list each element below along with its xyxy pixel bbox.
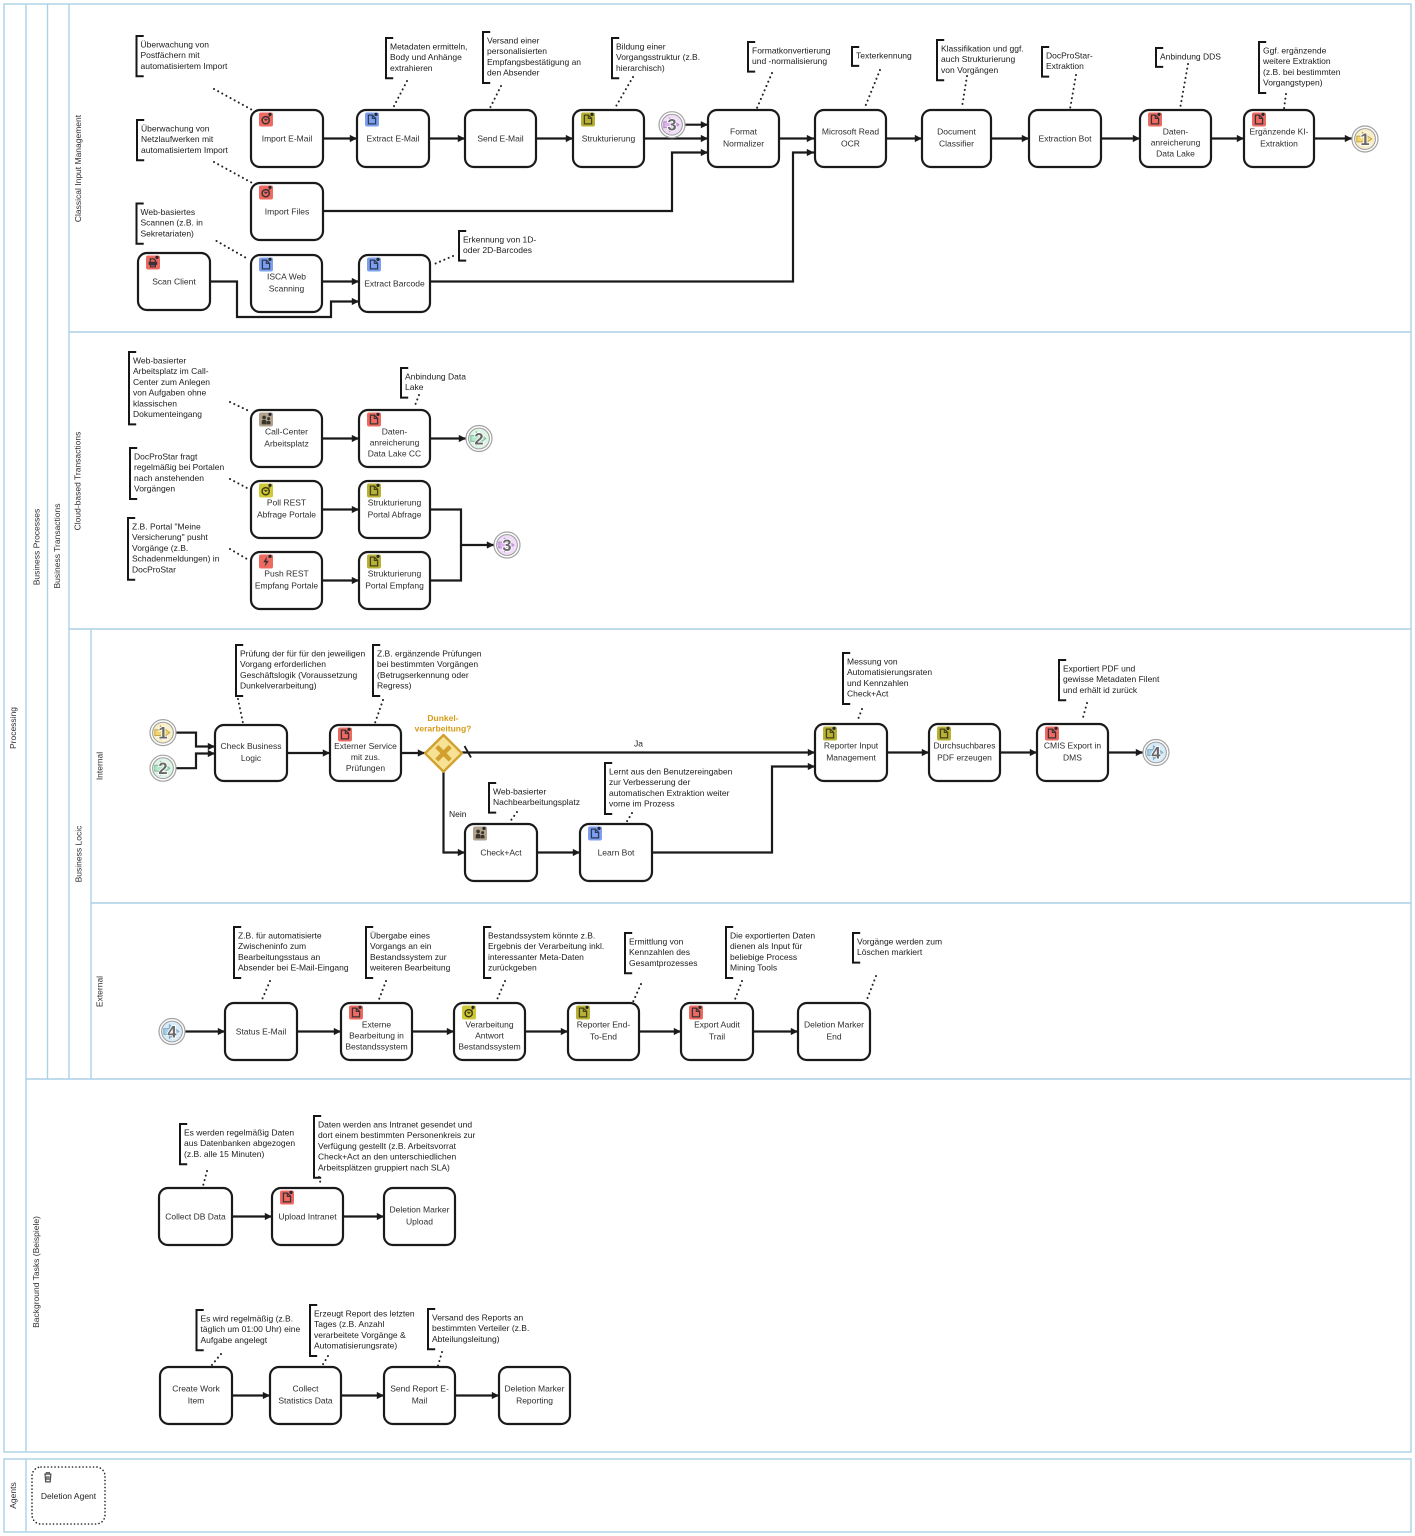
svg-text:Trail: Trail xyxy=(709,1031,725,1041)
svg-text:Regress): Regress) xyxy=(377,681,412,691)
svg-text:Learn Bot: Learn Bot xyxy=(598,847,635,857)
svg-text:Create Work: Create Work xyxy=(172,1384,220,1394)
svg-text:Postfächern mit: Postfächern mit xyxy=(141,50,201,60)
svg-text:Scan Client: Scan Client xyxy=(152,276,196,286)
svg-text:Vorgangsstruktur (z.B.: Vorgangsstruktur (z.B. xyxy=(616,52,700,62)
svg-text:Check Business: Check Business xyxy=(221,741,282,751)
svg-text:Versicherung" pusht: Versicherung" pusht xyxy=(132,532,208,542)
svg-text:1: 1 xyxy=(1360,131,1369,149)
svg-text:Send E-Mail: Send E-Mail xyxy=(477,133,523,143)
svg-text:DocProStar-: DocProStar- xyxy=(1046,51,1093,61)
svg-text:Classical Input Management: Classical Input Management xyxy=(73,114,83,222)
svg-text:von Vorgängen: von Vorgängen xyxy=(941,65,998,75)
svg-text:Scannen (z.B. in: Scannen (z.B. in xyxy=(141,218,204,228)
svg-text:Anbindung DDS: Anbindung DDS xyxy=(1160,52,1221,62)
svg-text:Item: Item xyxy=(188,1395,205,1405)
svg-text:Bearbeitung in: Bearbeitung in xyxy=(349,1030,404,1040)
svg-text:Z.B. für automatisierte: Z.B. für automatisierte xyxy=(238,931,322,941)
svg-text:Ergänzende KI-: Ergänzende KI- xyxy=(1249,127,1308,137)
svg-text:Background Tasks (Beispiele): Background Tasks (Beispiele) xyxy=(31,1216,41,1328)
svg-text:End: End xyxy=(826,1031,841,1041)
svg-text:1: 1 xyxy=(158,724,167,742)
svg-text:Portal Empfang: Portal Empfang xyxy=(365,580,424,590)
svg-text:Scanning: Scanning xyxy=(269,283,305,293)
svg-text:Zwischeninfo zum: Zwischeninfo zum xyxy=(238,941,306,951)
svg-text:(Betrugserkennung oder: (Betrugserkennung oder xyxy=(377,670,469,680)
svg-text:Deletion Marker: Deletion Marker xyxy=(505,1384,565,1394)
svg-text:Die exportierten Daten: Die exportierten Daten xyxy=(730,931,815,941)
svg-text:Reporting: Reporting xyxy=(516,1395,553,1405)
svg-text:mit zus.: mit zus. xyxy=(351,752,380,762)
svg-text:Ja: Ja xyxy=(634,739,643,749)
svg-text:Collect DB Data: Collect DB Data xyxy=(165,1211,226,1221)
svg-text:Absender bei E-Mail-Eingang: Absender bei E-Mail-Eingang xyxy=(238,963,349,973)
svg-text:Überwachung von: Überwachung von xyxy=(141,40,210,50)
svg-text:Center zum Anlegen: Center zum Anlegen xyxy=(133,377,210,387)
svg-text:oder 2D-Barcodes: oder 2D-Barcodes xyxy=(463,245,532,255)
svg-text:Dunkel-: Dunkel- xyxy=(427,713,458,723)
svg-text:Send Report E-: Send Report E- xyxy=(390,1384,449,1394)
svg-text:bestimmten Verteiler (z.B.: bestimmten Verteiler (z.B. xyxy=(432,1323,529,1333)
svg-text:Daten-: Daten- xyxy=(1163,127,1189,137)
svg-text:Bestandssystem: Bestandssystem xyxy=(458,1041,520,1051)
svg-text:Logic: Logic xyxy=(241,753,262,763)
svg-text:Dokumenteingang: Dokumenteingang xyxy=(133,409,202,419)
svg-text:Format: Format xyxy=(730,127,758,137)
svg-text:Extraction Bot: Extraction Bot xyxy=(1039,133,1093,143)
svg-text:zur Verbesserung der: zur Verbesserung der xyxy=(609,777,690,787)
svg-text:Data Lake CC: Data Lake CC xyxy=(368,448,421,458)
svg-text:Business Locic: Business Locic xyxy=(74,825,84,882)
svg-text:Bearbeitungsstaus an: Bearbeitungsstaus an xyxy=(238,952,320,962)
svg-text:regelmäßig bei Portalen: regelmäßig bei Portalen xyxy=(134,462,225,472)
svg-text:Arbeitsplatz im Call-: Arbeitsplatz im Call- xyxy=(133,366,209,376)
svg-text:Import Files: Import Files xyxy=(265,206,309,216)
svg-text:weiteren Bearbeitung: weiteren Bearbeitung xyxy=(369,963,451,973)
svg-text:automatischen Extraktion weite: automatischen Extraktion weiter xyxy=(609,788,730,798)
svg-text:Extraktion: Extraktion xyxy=(1046,61,1084,71)
svg-text:vorne im Prozess: vorne im Prozess xyxy=(609,799,675,809)
svg-text:auch Strukturierung: auch Strukturierung xyxy=(941,54,1015,64)
svg-text:weitere Extraktion: weitere Extraktion xyxy=(1262,56,1331,66)
svg-text:von Aufgaben ohne: von Aufgaben ohne xyxy=(133,388,207,398)
svg-text:anreicherung: anreicherung xyxy=(1151,137,1201,147)
svg-text:Lake: Lake xyxy=(405,382,424,392)
svg-text:Es werden regelmäßig Daten: Es werden regelmäßig Daten xyxy=(184,1128,294,1138)
svg-text:Exportiert PDF und: Exportiert PDF und xyxy=(1063,664,1136,674)
svg-text:automatisiertem Import: automatisiertem Import xyxy=(141,61,229,71)
svg-text:Klassifikation und ggf.: Klassifikation und ggf. xyxy=(941,44,1024,54)
svg-text:Upload: Upload xyxy=(406,1216,433,1226)
svg-text:Web-basierter: Web-basierter xyxy=(133,356,186,366)
svg-text:Automatisierungsrate): Automatisierungsrate) xyxy=(314,1341,397,1351)
svg-text:Verarbeitung: Verarbeitung xyxy=(465,1020,513,1030)
svg-text:External: External xyxy=(95,976,105,1007)
svg-text:Bestandssystem: Bestandssystem xyxy=(345,1041,407,1051)
svg-text:2: 2 xyxy=(158,760,167,778)
svg-text:ISCA Web: ISCA Web xyxy=(267,272,306,282)
svg-text:hierarchisch): hierarchisch) xyxy=(616,63,665,73)
svg-text:Automatisierungsraten: Automatisierungsraten xyxy=(847,667,932,677)
svg-text:DocProStar: DocProStar xyxy=(132,564,176,574)
svg-text:Strukturierung: Strukturierung xyxy=(582,133,636,143)
svg-text:aus Datenbanken abgezogen: aus Datenbanken abgezogen xyxy=(184,1138,295,1148)
svg-text:Texterkennung: Texterkennung xyxy=(856,51,912,61)
svg-text:Verfügung gestellt (z.B. Arbei: Verfügung gestellt (z.B. Arbeitsvorrat xyxy=(318,1141,457,1151)
svg-text:Status E-Mail: Status E-Mail xyxy=(236,1026,287,1036)
svg-text:dienen als Input für: dienen als Input für xyxy=(730,941,802,951)
svg-text:Z.B. Portal "Meine: Z.B. Portal "Meine xyxy=(132,522,201,532)
svg-text:dort einem bestimmten Personen: dort einem bestimmten Personenkreis zur xyxy=(318,1130,475,1140)
svg-text:Es wird regelmäßig (z.B.: Es wird regelmäßig (z.B. xyxy=(201,1314,294,1324)
svg-text:extrahieren: extrahieren xyxy=(390,63,433,73)
svg-text:Bildung einer: Bildung einer xyxy=(616,42,666,52)
svg-text:DMS: DMS xyxy=(1063,752,1082,762)
svg-text:CMIS Export in: CMIS Export in xyxy=(1044,741,1101,751)
svg-text:Export Audit: Export Audit xyxy=(694,1020,740,1030)
svg-text:Messung von: Messung von xyxy=(847,657,898,667)
svg-text:2: 2 xyxy=(474,430,483,448)
svg-text:Empfangsbestätigung an: Empfangsbestätigung an xyxy=(487,57,581,67)
svg-text:Cloud-based Transactions: Cloud-based Transactions xyxy=(72,432,82,531)
svg-text:Portal Abfrage: Portal Abfrage xyxy=(368,509,422,519)
svg-text:Ermittlung von: Ermittlung von xyxy=(629,937,684,947)
svg-text:Web-basiertes: Web-basiertes xyxy=(141,207,196,217)
svg-text:Z.B. ergänzende Prüfungen: Z.B. ergänzende Prüfungen xyxy=(377,649,482,659)
svg-text:Deletion Agent: Deletion Agent xyxy=(41,1491,97,1501)
svg-text:Check+Act an den unterschiedli: Check+Act an den unterschiedlichen xyxy=(318,1152,456,1162)
svg-text:interessanter Meta-Daten: interessanter Meta-Daten xyxy=(488,952,584,962)
svg-text:Kennzahlen des: Kennzahlen des xyxy=(629,947,690,957)
svg-text:Check+Act: Check+Act xyxy=(480,847,522,857)
svg-text:Versand des Reports an: Versand des Reports an xyxy=(432,1313,523,1323)
svg-text:Extract E-Mail: Extract E-Mail xyxy=(367,133,420,143)
svg-text:Extraktion: Extraktion xyxy=(1260,138,1298,148)
svg-text:Überwachung von: Überwachung von xyxy=(141,124,210,134)
svg-text:Business Processes: Business Processes xyxy=(32,509,42,586)
svg-text:Tages (z.B. Anzahl: Tages (z.B. Anzahl xyxy=(314,1319,385,1329)
svg-text:Ergebnis der Verarbeitung inkl: Ergebnis der Verarbeitung inkl. xyxy=(488,941,604,951)
svg-text:Deletion Marker: Deletion Marker xyxy=(804,1020,864,1030)
svg-text:3: 3 xyxy=(502,537,511,555)
svg-text:Nachbearbeitungsplatz: Nachbearbeitungsplatz xyxy=(493,797,580,807)
svg-text:3: 3 xyxy=(667,117,676,135)
svg-text:Erkennung von 1D-: Erkennung von 1D- xyxy=(463,235,536,245)
svg-text:Durchsuchbares: Durchsuchbares xyxy=(934,741,996,751)
svg-text:Gesamtprozesses: Gesamtprozesses xyxy=(629,958,698,968)
svg-text:und Kennzahlen: und Kennzahlen xyxy=(847,678,909,688)
svg-text:täglich um 01:00 Uhr) eine: täglich um 01:00 Uhr) eine xyxy=(201,1324,301,1334)
svg-text:Übergabe eines: Übergabe eines xyxy=(370,931,430,941)
svg-text:Internal: Internal xyxy=(95,752,105,780)
svg-text:und erhält id zurück: und erhält id zurück xyxy=(1063,685,1138,695)
svg-text:(z.B. alle 15 Minuten): (z.B. alle 15 Minuten) xyxy=(184,1149,264,1159)
svg-text:Prüfungen: Prüfungen xyxy=(346,763,385,773)
svg-text:Microsoft Read: Microsoft Read xyxy=(822,127,879,137)
svg-text:klassischen: klassischen xyxy=(133,398,177,408)
svg-text:Dunkelverarbeitung): Dunkelverarbeitung) xyxy=(240,681,317,691)
svg-text:Mining Tools: Mining Tools xyxy=(730,963,777,973)
svg-text:Bestandssystem zur: Bestandssystem zur xyxy=(370,952,447,962)
svg-text:Data Lake: Data Lake xyxy=(1156,148,1195,158)
svg-text:Vorgangs an ein: Vorgangs an ein xyxy=(370,941,432,951)
svg-text:Formatkonvertierung: Formatkonvertierung xyxy=(752,46,831,56)
svg-text:Erzeugt Report des letzten: Erzeugt Report des letzten xyxy=(314,1309,415,1319)
svg-text:Body und Anhänge: Body und Anhänge xyxy=(390,52,462,62)
svg-text:nach anstehenden: nach anstehenden xyxy=(134,473,204,483)
svg-text:Daten-: Daten- xyxy=(382,427,408,437)
svg-text:Call-Center: Call-Center xyxy=(265,427,308,437)
svg-text:Prüfung der für für den jeweil: Prüfung der für für den jeweiligen xyxy=(240,649,365,659)
svg-text:Push REST: Push REST xyxy=(264,569,308,579)
svg-text:Netzlaufwerken mit: Netzlaufwerken mit xyxy=(141,134,214,144)
svg-text:Agents: Agents xyxy=(8,1482,18,1508)
svg-text:Poll REST: Poll REST xyxy=(267,498,306,508)
svg-text:Antwort: Antwort xyxy=(475,1030,504,1040)
svg-text:Abfrage Portale: Abfrage Portale xyxy=(257,509,316,519)
svg-text:Vorgängen: Vorgängen xyxy=(134,484,175,494)
svg-text:Anbindung Data: Anbindung Data xyxy=(405,372,466,382)
svg-text:Document: Document xyxy=(937,127,976,137)
svg-text:Metadaten ermitteln,: Metadaten ermitteln, xyxy=(390,42,467,52)
svg-text:Web-basierter: Web-basierter xyxy=(493,787,546,797)
svg-text:Vorgangstypen): Vorgangstypen) xyxy=(1263,78,1323,88)
svg-text:Ggf. ergänzende: Ggf. ergänzende xyxy=(1263,46,1327,56)
svg-text:To-End: To-End xyxy=(590,1031,617,1041)
svg-text:Vorgänge werden zum: Vorgänge werden zum xyxy=(857,937,942,947)
svg-text:Empfang Portale: Empfang Portale xyxy=(255,580,319,590)
svg-text:Vorgang erforderlichen: Vorgang erforderlichen xyxy=(240,659,326,669)
svg-text:Arbeitsplätzen gruppiert nach: Arbeitsplätzen gruppiert nach SLA) xyxy=(318,1162,450,1172)
svg-text:Schadenmeldungen) in: Schadenmeldungen) in xyxy=(132,554,220,564)
svg-text:Bestandssystem könnte z.B.: Bestandssystem könnte z.B. xyxy=(488,931,595,941)
svg-text:Management: Management xyxy=(826,752,876,762)
svg-text:4: 4 xyxy=(167,1023,177,1041)
svg-text:Geschäftslogik (Voraussetzung: Geschäftslogik (Voraussetzung xyxy=(240,670,357,680)
svg-text:Nein: Nein xyxy=(449,809,467,819)
svg-text:den Absender: den Absender xyxy=(487,68,540,78)
svg-text:Externe: Externe xyxy=(362,1020,392,1030)
svg-text:Normalizer: Normalizer xyxy=(723,138,764,148)
svg-text:Lernt aus den Benutzereingaben: Lernt aus den Benutzereingaben xyxy=(609,767,733,777)
svg-text:bei bestimmten Vorgängen: bei bestimmten Vorgängen xyxy=(377,659,478,669)
svg-text:Extract Barcode: Extract Barcode xyxy=(364,278,425,288)
svg-text:zurückgeben: zurückgeben xyxy=(488,963,537,973)
svg-text:Upload Intranet: Upload Intranet xyxy=(278,1211,337,1221)
svg-text:Check+Act: Check+Act xyxy=(847,689,889,699)
svg-text:verarbeitete Vorgänge &: verarbeitete Vorgänge & xyxy=(314,1330,406,1340)
svg-text:Sekretariaten): Sekretariaten) xyxy=(141,228,195,238)
svg-text:Classifier: Classifier xyxy=(939,138,974,148)
svg-text:Reporter Input: Reporter Input xyxy=(824,741,879,751)
svg-text:automatisiertem Import: automatisiertem Import xyxy=(141,145,229,155)
svg-text:Versand einer: Versand einer xyxy=(487,36,540,46)
svg-text:OCR: OCR xyxy=(841,138,860,148)
svg-text:gewisse Metadaten Filent: gewisse Metadaten Filent xyxy=(1063,674,1160,684)
svg-text:DocProStar fragt: DocProStar fragt xyxy=(134,452,198,462)
svg-text:(z.B. bei bestimmten: (z.B. bei bestimmten xyxy=(1263,67,1341,77)
svg-text:Collect: Collect xyxy=(293,1384,320,1394)
svg-text:beliebige Process: beliebige Process xyxy=(730,952,797,962)
svg-text:Processing: Processing xyxy=(8,707,18,749)
svg-text:Strukturierung: Strukturierung xyxy=(368,498,422,508)
svg-text:4: 4 xyxy=(1151,744,1161,762)
svg-text:Arbeitsplatz: Arbeitsplatz xyxy=(264,438,308,448)
svg-text:personalisierten: personalisierten xyxy=(487,46,547,56)
svg-text:Aufgabe angelegt: Aufgabe angelegt xyxy=(201,1335,268,1345)
svg-text:Import E-Mail: Import E-Mail xyxy=(262,133,313,143)
svg-text:verarbeitung?: verarbeitung? xyxy=(415,724,472,734)
svg-text:Statistics Data: Statistics Data xyxy=(278,1395,333,1405)
svg-text:PDF erzeugen: PDF erzeugen xyxy=(937,752,992,762)
svg-text:Deletion Marker: Deletion Marker xyxy=(390,1205,450,1215)
svg-text:Business Transactions: Business Transactions xyxy=(52,503,62,588)
svg-text:Löschen markiert: Löschen markiert xyxy=(857,947,923,957)
svg-text:Vorgänge (z.B.: Vorgänge (z.B. xyxy=(132,543,188,553)
svg-text:Daten werden ans Intranet gese: Daten werden ans Intranet gesendet und xyxy=(318,1120,472,1130)
svg-text:Mail: Mail xyxy=(412,1395,428,1405)
svg-text:anreicherung: anreicherung xyxy=(370,437,420,447)
svg-text:und -normalisierung: und -normalisierung xyxy=(752,56,827,66)
svg-text:Abteilungsleitung): Abteilungsleitung) xyxy=(432,1334,500,1344)
svg-text:Externer Service: Externer Service xyxy=(334,741,397,751)
svg-text:Reporter End-: Reporter End- xyxy=(577,1020,631,1030)
svg-text:Strukturierung: Strukturierung xyxy=(368,569,422,579)
